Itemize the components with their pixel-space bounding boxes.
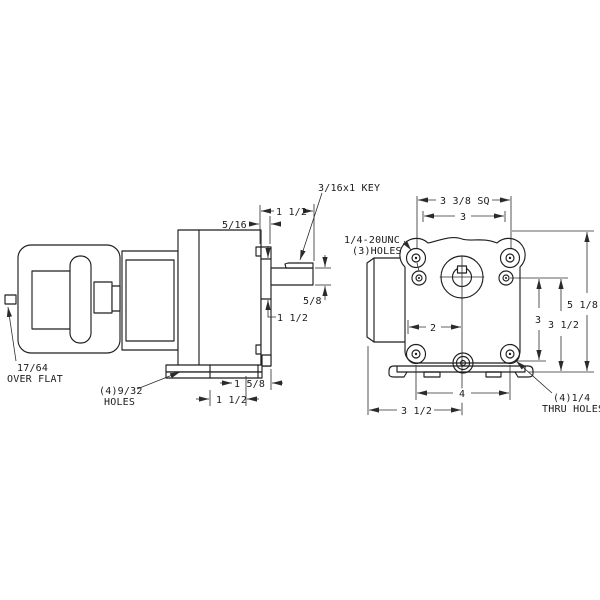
dim-center-offset-label: 2 [430, 323, 436, 334]
callout-base-holes-line1: (4)9/32 [99, 386, 143, 397]
dim-top-hole-spacing-label: 3 [460, 212, 466, 223]
callout-thru-line1: (4)1/4 [553, 393, 590, 404]
motor-silhouette [367, 258, 405, 342]
dim-side-hole-span: 3 [535, 279, 541, 360]
face-plate-tab-top [256, 247, 261, 256]
dim-bottom-hole-span: 4 [416, 365, 510, 400]
callout-tapped-line1: 1/4-20UNC [344, 235, 400, 246]
dim-side-span-mid: 3 1/2 [548, 279, 579, 371]
mounting-bracket [389, 366, 533, 377]
end-view: 3 3/8 SQ 3 1/4-20UNC (3)HOLES 2 [344, 196, 600, 417]
dim-bottom-offset-label: 3 1/2 [401, 406, 432, 417]
dim-overall-height-label: 5 1/8 [567, 300, 598, 311]
motor-hub-step [112, 286, 120, 311]
dim-hub-diameter-label: 1 1/2 [277, 313, 308, 324]
shaft-flat-tab [5, 295, 16, 304]
motor-capsule [70, 256, 91, 343]
bracket-tab-right [486, 372, 501, 377]
mounting-base-bottom [166, 372, 262, 378]
input-housing [122, 251, 178, 350]
output-shaft [271, 268, 313, 285]
side-view: 5/16 1 1/2 3/16x1 KEY 5/8 1 1/2 [5, 183, 380, 408]
dim-side-span-mid-label: 3 1/2 [548, 320, 579, 331]
callout-flat-value: 17/64 [17, 363, 48, 374]
dim-side-hole-span-label: 3 [535, 315, 541, 326]
dim-shaft-diameter-label: 5/8 [303, 296, 322, 307]
callout-key-label: 3/16x1 KEY [318, 183, 380, 194]
dim-face-thickness-label: 5/16 [222, 220, 247, 231]
face-plate [261, 247, 271, 366]
shaft-key [285, 263, 313, 268]
dim-base-spacing-label: 1 1/2 [216, 395, 247, 406]
face-plate-tab-bottom [256, 345, 261, 354]
dim-overall-height: 5 1/8 [567, 232, 598, 371]
mounting-base-top [166, 365, 262, 372]
callout-flat-caption: OVER FLAT [7, 374, 63, 385]
drawing-canvas: 5/16 1 1/2 3/16x1 KEY 5/8 1 1/2 [0, 0, 600, 600]
bracket-tab-left [424, 372, 440, 377]
callout-base-holes-line2: HOLES [104, 397, 135, 408]
gear-foot [262, 355, 271, 366]
dim-shaft-length-label: 1 1/2 [276, 207, 307, 218]
dim-bottom-hole-span-label: 4 [459, 389, 465, 400]
technical-drawing: 5/16 1 1/2 3/16x1 KEY 5/8 1 1/2 [0, 0, 600, 600]
callout-tapped-line2: (3)HOLES [352, 246, 402, 257]
dim-square-size-label: 3 3/8 SQ [440, 196, 490, 207]
gear-housing [178, 230, 261, 366]
motor-hub [94, 282, 112, 313]
dim-base-to-face-label: 1 5/8 [234, 379, 265, 390]
dim-top-hole-spacing: 3 [423, 211, 505, 223]
callout-thru-line2: THRU HOLES [542, 404, 600, 415]
